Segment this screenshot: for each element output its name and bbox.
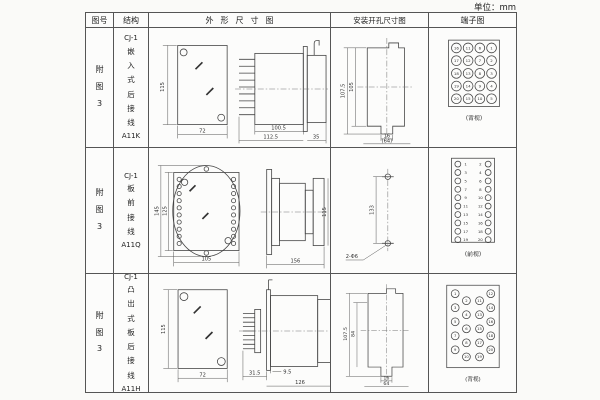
- dim-hole-note-row2: 2-Φ6: [345, 254, 357, 260]
- terminal-number: 1: [464, 161, 467, 166]
- terminal-number: 15: [477, 327, 482, 331]
- dim-flange-off-row3: 9.5: [283, 369, 291, 375]
- terminal-circle: [177, 241, 181, 245]
- terminal-circle: [177, 198, 181, 202]
- mounting-drawing-a11h: 107.5 84 16 64: [332, 275, 428, 391]
- terminal-number: 12: [488, 292, 493, 296]
- terminal-number: 6: [479, 45, 482, 50]
- outline-drawing-a11q: 145 125 105 156 115: [150, 149, 330, 273]
- cell-outline-row3: 115 72 31.5 9.5 126: [149, 274, 331, 392]
- terminal-number: 17: [477, 341, 482, 345]
- model-row1: A11K: [122, 132, 140, 140]
- dim-front-h-inner-row2: 125: [162, 206, 168, 216]
- cell-structure-row3: CJ-1 凸出式板后接线 A11H: [114, 274, 149, 392]
- terminal-number: 11: [466, 45, 471, 50]
- terminal-number: 8: [465, 341, 468, 345]
- terminal-number: 4: [465, 313, 468, 317]
- dim-side-len-row2: 156: [290, 258, 300, 264]
- terminal-number: 19: [454, 83, 459, 88]
- header-terminal: 端子图: [429, 13, 516, 28]
- terminal-circle: [231, 177, 235, 181]
- mounting-drawing-a11k: 107.5 105 16 (64): [332, 29, 428, 147]
- outline-drawing-a11h: 115 72 31.5 9.5 126: [150, 274, 330, 392]
- terminal-number: 9: [479, 83, 482, 88]
- terminal-number: 2: [490, 58, 493, 63]
- dim-inner-h-row3: 84: [350, 331, 356, 337]
- terminal-drawing-a11q: 1357911131517192468101214161820 (前视): [430, 149, 515, 273]
- terminal-circle: [455, 236, 461, 242]
- terminal-circle: [231, 212, 235, 216]
- terminal-number: 14: [488, 306, 493, 310]
- terminal-number: 7: [479, 58, 482, 63]
- outline-drawing-a11k: 115 72 100.5 112.5 35: [150, 29, 330, 147]
- terminal-number: 5: [464, 178, 467, 183]
- terminal-number: 2: [465, 299, 467, 303]
- cell-figure-row2: 附图3: [86, 148, 114, 274]
- terminal-circle: [177, 212, 181, 216]
- terminal-number: 14: [466, 83, 471, 88]
- cell-outline-row2: 145 125 105 156 115: [149, 148, 331, 274]
- terminal-number: 7: [464, 186, 467, 191]
- terminal-number: 6: [465, 327, 468, 331]
- terminal-number: 3: [490, 70, 493, 75]
- terminal-number: 20: [478, 237, 483, 242]
- cell-structure-row1: CJ-1 嵌入式后接线 A11K: [114, 28, 149, 148]
- dim-outer-h-row1: 107.5: [340, 83, 346, 98]
- terminal-number: 2: [479, 161, 482, 166]
- terminal-circle: [485, 177, 491, 183]
- terminal-number: 16: [488, 320, 493, 324]
- dim-body-len-row1: 100.5: [271, 125, 286, 131]
- terminal-number: 19: [477, 355, 482, 359]
- terminal-circle: [455, 219, 461, 225]
- terminal-circle: [485, 236, 491, 242]
- terminal-number: 13: [477, 313, 482, 317]
- mount-text-row3: 凸出式板后接线: [127, 283, 135, 383]
- terminal-number: 10: [478, 195, 483, 200]
- terminal-circle: [231, 227, 235, 231]
- terminal-number: 12: [478, 203, 483, 208]
- terminal-number: 1: [490, 45, 493, 50]
- terminal-circle: [231, 241, 235, 245]
- terminal-circle: [485, 203, 491, 209]
- terminal-number: 4: [490, 83, 493, 88]
- terminal-drawing-a11h: 1357924681011131517191214161820 (背视): [430, 274, 515, 392]
- dim-front-w-row1: 72: [199, 128, 206, 134]
- figure-no-row1: 附图3: [96, 62, 104, 112]
- terminal-number: 7: [454, 334, 457, 338]
- cell-structure-row2: CJ-1 板前接线 A11Q: [114, 148, 149, 274]
- cell-figure-row1: 附图3: [86, 28, 114, 148]
- figure-no-row3: 附图3: [96, 308, 104, 358]
- terminal-circle: [455, 169, 461, 175]
- header-mounting: 安装开孔尺寸图: [331, 13, 429, 28]
- terminal-number: 16: [478, 220, 483, 225]
- terminal-circle: [177, 177, 181, 181]
- header-figure-no: 图号: [86, 13, 114, 28]
- cell-figure-row3: 附图3: [86, 274, 114, 392]
- terminal-number: 5: [490, 96, 493, 101]
- mounting-drawing-a11q: 133 2-Φ6: [332, 149, 428, 273]
- terminal-circle: [455, 194, 461, 200]
- terminal-circle: [455, 186, 461, 192]
- terminal-circle: [177, 205, 181, 209]
- figure-no-row2: 附图3: [96, 185, 104, 235]
- terminal-number: 10: [477, 96, 482, 101]
- terminal-number: 3: [464, 169, 467, 174]
- dim-inner-h-row1: 105: [349, 82, 355, 92]
- dim-total-len-row1: 112.5: [263, 134, 278, 140]
- dim-front-w-row2: 105: [201, 256, 211, 262]
- terminal-number: 8: [479, 70, 482, 75]
- terminal-circle: [485, 194, 491, 200]
- series-row1: CJ-1: [124, 34, 138, 42]
- spec-sheet: 单位：mm 图号 结构 外形尺寸图 安装开孔尺寸图 端子图 附图3 CJ-1 嵌…: [0, 0, 600, 400]
- terminal-number: 14: [478, 211, 483, 216]
- terminal-number: 20: [488, 348, 493, 352]
- terminal-number: 10: [464, 355, 469, 359]
- series-row2: CJ-1: [124, 172, 138, 180]
- terminal-circle: [455, 211, 461, 217]
- model-row2: A11Q: [121, 241, 140, 249]
- terminal-view-label-row3: (背视): [465, 375, 481, 383]
- terminal-circle: [455, 161, 461, 167]
- terminal-number: 18: [488, 334, 493, 338]
- terminal-number: 11: [477, 299, 482, 303]
- terminal-number: 20: [454, 96, 459, 101]
- terminal-number: 17: [454, 58, 459, 63]
- terminal-circle: [455, 228, 461, 234]
- dim-span-w-row3: 64: [383, 381, 389, 387]
- cell-mounting-row2: 133 2-Φ6: [331, 148, 429, 274]
- terminal-circle: [485, 219, 491, 225]
- dim-rear-len-row1: 35: [312, 134, 319, 140]
- terminal-circle: [177, 191, 181, 195]
- cell-mounting-row3: 107.5 84 16 64: [331, 274, 429, 392]
- terminal-number: 4: [479, 169, 482, 174]
- series-row3: CJ-1: [124, 274, 138, 281]
- terminal-number: 15: [463, 220, 468, 225]
- terminal-number: 17: [463, 228, 468, 233]
- dimension-table: 图号 结构 外形尺寸图 安装开孔尺寸图 端子图 附图3 CJ-1 嵌入式后接线 …: [85, 12, 517, 393]
- terminal-circle: [485, 161, 491, 167]
- terminal-circle: [177, 220, 181, 224]
- terminal-number: 5: [454, 320, 457, 324]
- dim-pin-len-row3: 31.5: [249, 370, 260, 376]
- terminal-circle: [485, 211, 491, 217]
- terminal-drawing-a11k: 1611611712721813831914942015105 (背视): [430, 29, 515, 147]
- terminal-number: 13: [463, 211, 468, 216]
- dim-side-h-row2: 115: [322, 207, 328, 217]
- terminal-circle: [455, 203, 461, 209]
- terminal-number: 13: [466, 70, 471, 75]
- terminal-number: 18: [478, 228, 483, 233]
- header-outline: 外形尺寸图: [149, 13, 331, 28]
- header-structure: 结构: [114, 13, 149, 28]
- terminal-circle: [485, 186, 491, 192]
- terminal-view-label-row1: (背视): [466, 114, 482, 122]
- terminal-circle: [485, 228, 491, 234]
- cell-terminal-row1: 1611611712721813831914942015105 (背视): [429, 28, 516, 148]
- cell-terminal-row2: 1357911131517192468101214161820 (前视): [429, 148, 516, 274]
- dim-body-len-row3: 126: [295, 380, 305, 386]
- dim-outer-h-row3: 107.5: [342, 327, 348, 341]
- dim-front-w-row3: 72: [199, 372, 206, 378]
- terminal-number: 9: [454, 348, 457, 352]
- dim-span-w-row1: (64): [381, 138, 391, 144]
- dim-front-h-row1: 115: [159, 82, 165, 92]
- terminal-view-label-row2: (前视): [465, 249, 481, 257]
- cell-mounting-row1: 107.5 105 16 (64): [331, 28, 429, 148]
- cell-outline-row1: 115 72 100.5 112.5 35: [149, 28, 331, 148]
- terminal-circle: [231, 205, 235, 209]
- terminal-number: 15: [466, 96, 471, 101]
- terminal-circle: [231, 220, 235, 224]
- model-row3: A11H: [122, 385, 141, 392]
- terminal-number: 11: [463, 203, 468, 208]
- terminal-circle: [177, 227, 181, 231]
- terminal-number: 3: [454, 306, 457, 310]
- terminal-circle: [485, 169, 491, 175]
- dim-front-h-outer-row2: 145: [154, 206, 160, 216]
- terminal-circle: [231, 198, 235, 202]
- cell-terminal-row3: 1357924681011131517191214161820 (背视): [429, 274, 516, 392]
- terminal-number: 9: [464, 195, 467, 200]
- terminal-number: 19: [463, 237, 468, 242]
- terminal-number: 6: [479, 178, 482, 183]
- dim-slot-w-row3: 16: [383, 375, 389, 381]
- dim-hole-pitch-row2: 133: [369, 205, 375, 215]
- terminal-number: 18: [454, 70, 459, 75]
- terminal-number: 1: [454, 292, 457, 296]
- terminal-circle: [455, 177, 461, 183]
- mount-text-row2: 板前接线: [127, 182, 135, 239]
- terminal-number: 8: [479, 186, 482, 191]
- dim-front-h-row3: 115: [160, 324, 166, 334]
- terminal-number: 12: [466, 58, 471, 63]
- mount-text-row1: 嵌入式后接线: [127, 45, 135, 131]
- terminal-number: 16: [454, 45, 459, 50]
- terminal-circle: [231, 191, 235, 195]
